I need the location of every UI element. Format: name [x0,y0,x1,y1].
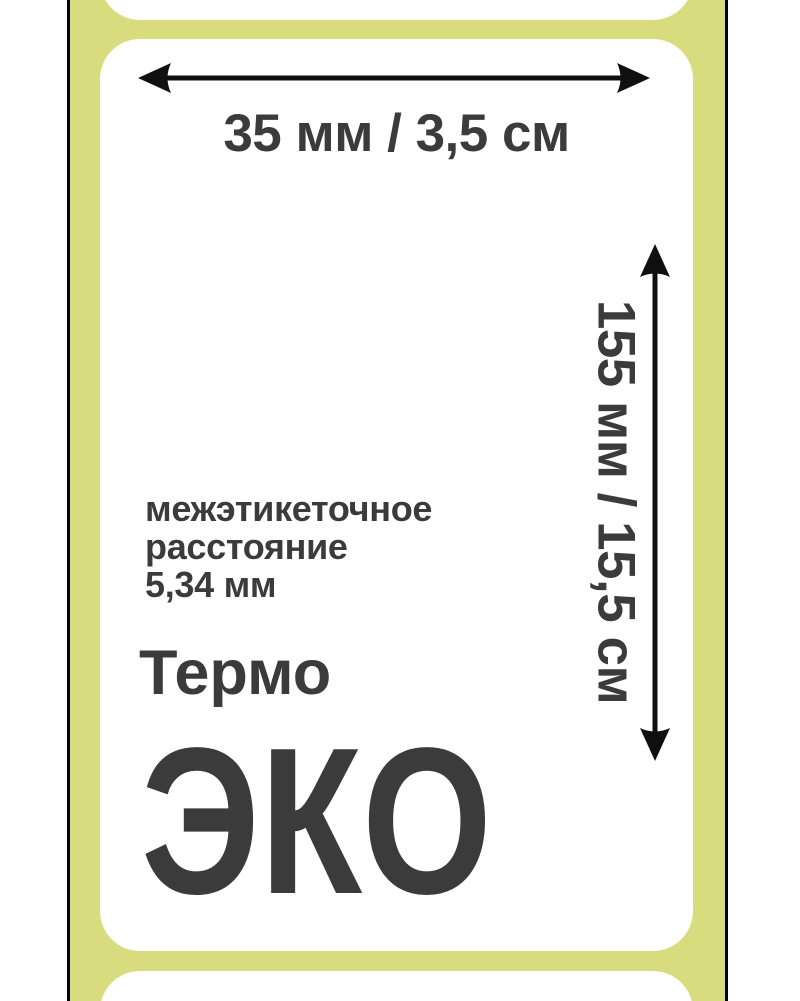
height-dimension-label: 155 мм / 15,5 см [590,300,643,704]
gap-note-line3: 5,34 мм [145,566,432,604]
adjacent-label-top [100,0,693,20]
thermal-label-product-image: 35 мм / 3,5 см 155 мм / 15,5 см межэтике… [0,0,800,1001]
width-dimension-label: 35 мм / 3,5 см [100,107,693,160]
inter-label-gap-note: межэтикеточное расстояние 5,34 мм [145,490,432,604]
material-name: ЭКО [141,717,492,926]
width-dimension-arrow-icon [137,50,651,106]
print-type-title: Термо [139,642,331,705]
gap-note-line1: межэтикеточное [145,490,432,528]
gap-note-line2: расстояние [145,528,432,566]
adjacent-label-bottom [100,971,693,1001]
